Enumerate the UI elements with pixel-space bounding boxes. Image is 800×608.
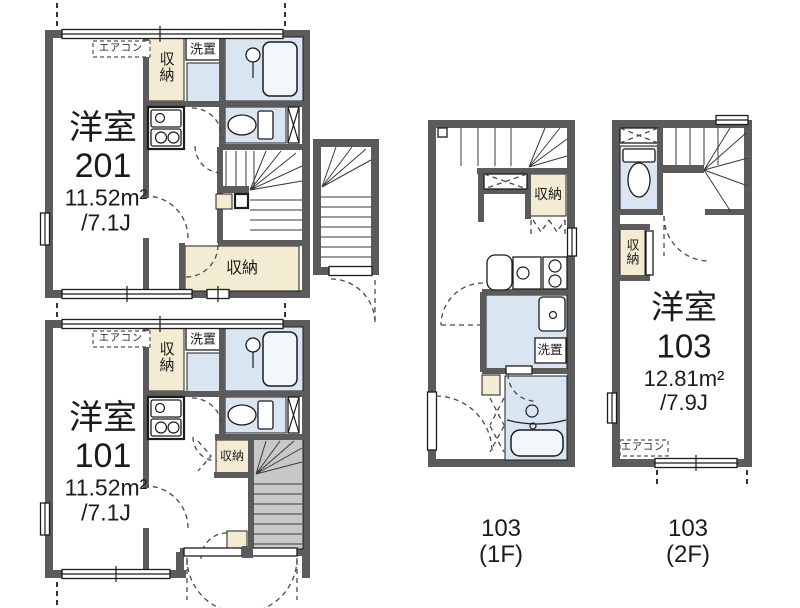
tatami-103: /7.9J: [660, 392, 708, 414]
laundry-label-103-1f: 洗置: [537, 344, 562, 357]
caption-103-1f-line2: (1F): [479, 543, 523, 567]
caption-103-2f-line2: (2F): [666, 543, 710, 567]
storage-label-101: 収納: [220, 450, 244, 462]
laundry-label-201: 洗置: [190, 43, 216, 56]
bathtub-icon: [263, 42, 297, 96]
aircon-label-103-2f: エアコン: [621, 443, 665, 453]
shower-icon: [246, 338, 260, 352]
room-number-201: 201: [75, 149, 132, 183]
stairwell-door-gap: [329, 267, 372, 276]
meter-box: [235, 194, 248, 208]
closet-label-101: 収納: [159, 341, 174, 373]
caption-103-1f-line1: 103: [481, 517, 521, 541]
genkan-step: [482, 375, 500, 395]
kitchen-icon: [148, 107, 184, 149]
storage-label-201: 収納: [226, 261, 258, 277]
entrance-doors: [184, 546, 297, 608]
caption-103-2f-line1: 103: [668, 517, 708, 541]
tatami-201: /7.1J: [81, 212, 131, 235]
door-arc: [192, 398, 222, 428]
door-arc: [146, 486, 188, 528]
door-arc: [441, 283, 483, 325]
toilet-tank-icon: [623, 149, 655, 162]
unit-201-washer-pan: [187, 63, 220, 102]
floorplan-canvas: 洋室 201 11.52m² /7.1J エアコン 収納 洗置 収納 洋室 10…: [0, 0, 800, 608]
toilet-tank-icon: [258, 111, 273, 139]
bathtub-icon: [263, 332, 297, 386]
aircon-label-101: エアコン: [99, 334, 143, 344]
hatch-strip: [490, 398, 504, 452]
closet-label-201: 収納: [159, 51, 174, 83]
room-type-201: 洋室: [69, 111, 137, 145]
room-type-103: 洋室: [651, 291, 717, 324]
toilet-tank-icon: [258, 401, 273, 429]
unit-201-stairs: [221, 151, 302, 230]
vanity-icon: [539, 297, 565, 331]
entrance-door-gap: [428, 392, 437, 450]
shower-icon: [246, 48, 260, 62]
bath-door-gap: [506, 366, 532, 374]
door-arc: [331, 279, 375, 323]
unit-103-2f-stairs: [662, 128, 748, 212]
laundry-label-101: 洗置: [190, 333, 216, 346]
room-number-101: 101: [75, 439, 132, 473]
stairwell: [317, 143, 375, 323]
toilet-icon: [628, 163, 650, 197]
toilet-icon: [228, 115, 256, 135]
door-arc: [436, 396, 492, 452]
area-101: 11.52m²: [65, 477, 148, 500]
door-arc: [664, 216, 709, 261]
closet-label-103-2f: 収納: [626, 238, 639, 266]
folding-door: [198, 441, 211, 471]
room-number-103: 103: [656, 330, 711, 363]
door-arc: [192, 108, 222, 138]
area-103: 12.81m²: [644, 368, 725, 390]
closet-label-103-1f: 収納: [534, 187, 562, 201]
area-201: 11.52m²: [65, 187, 148, 210]
unit-103-1f: [428, 124, 577, 463]
tatami-101: /7.1J: [81, 502, 131, 525]
door-arc: [146, 196, 188, 238]
shoe-box: [216, 194, 232, 209]
kitchen-icon: [487, 255, 567, 290]
room-type-101: 洋室: [69, 401, 137, 435]
folding-door: [533, 220, 565, 232]
kitchen-icon: [148, 397, 184, 439]
toilet-icon: [228, 405, 256, 425]
unit-101-washer-pan: [187, 353, 220, 392]
aircon-label-201: エアコン: [99, 44, 143, 54]
unit-103-1f-stairs: [438, 128, 567, 167]
closet-door: [646, 231, 653, 275]
